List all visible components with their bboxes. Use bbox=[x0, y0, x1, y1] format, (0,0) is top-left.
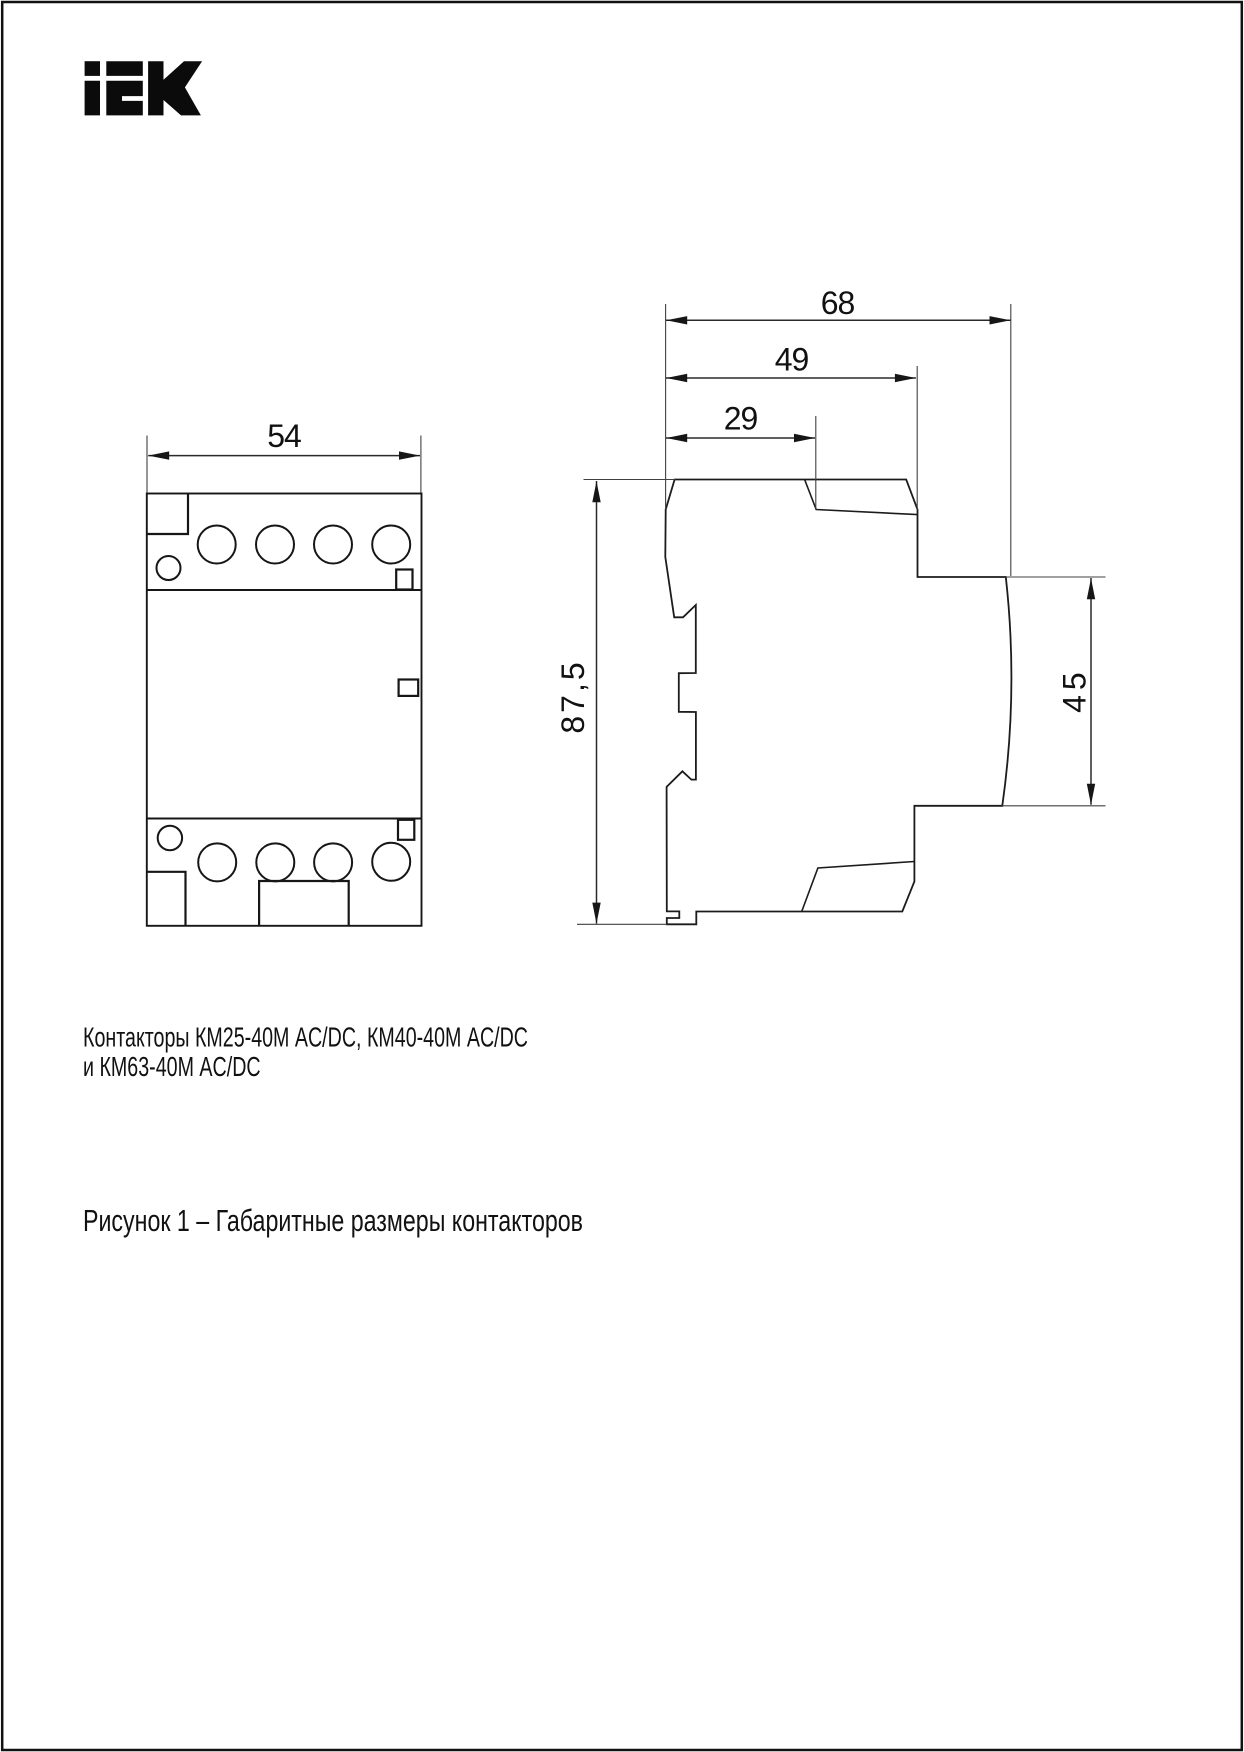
svg-text:45: 45 bbox=[1056, 667, 1092, 713]
svg-text:49: 49 bbox=[775, 342, 809, 378]
svg-text:и КМ63-40М AC/DC: и КМ63-40М AC/DC bbox=[83, 1051, 261, 1082]
svg-text:87,5: 87,5 bbox=[555, 659, 591, 733]
svg-text:Контакторы КМ25-40М AC/DC, КМ4: Контакторы КМ25-40М AC/DC, КМ40-40М AC/D… bbox=[83, 1022, 528, 1053]
svg-text:29: 29 bbox=[724, 401, 758, 437]
svg-text:54: 54 bbox=[267, 418, 301, 454]
svg-text:68: 68 bbox=[821, 285, 855, 321]
svg-text:Рисунок 1 – Габаритные размеры: Рисунок 1 – Габаритные размеры контактор… bbox=[83, 1203, 583, 1238]
